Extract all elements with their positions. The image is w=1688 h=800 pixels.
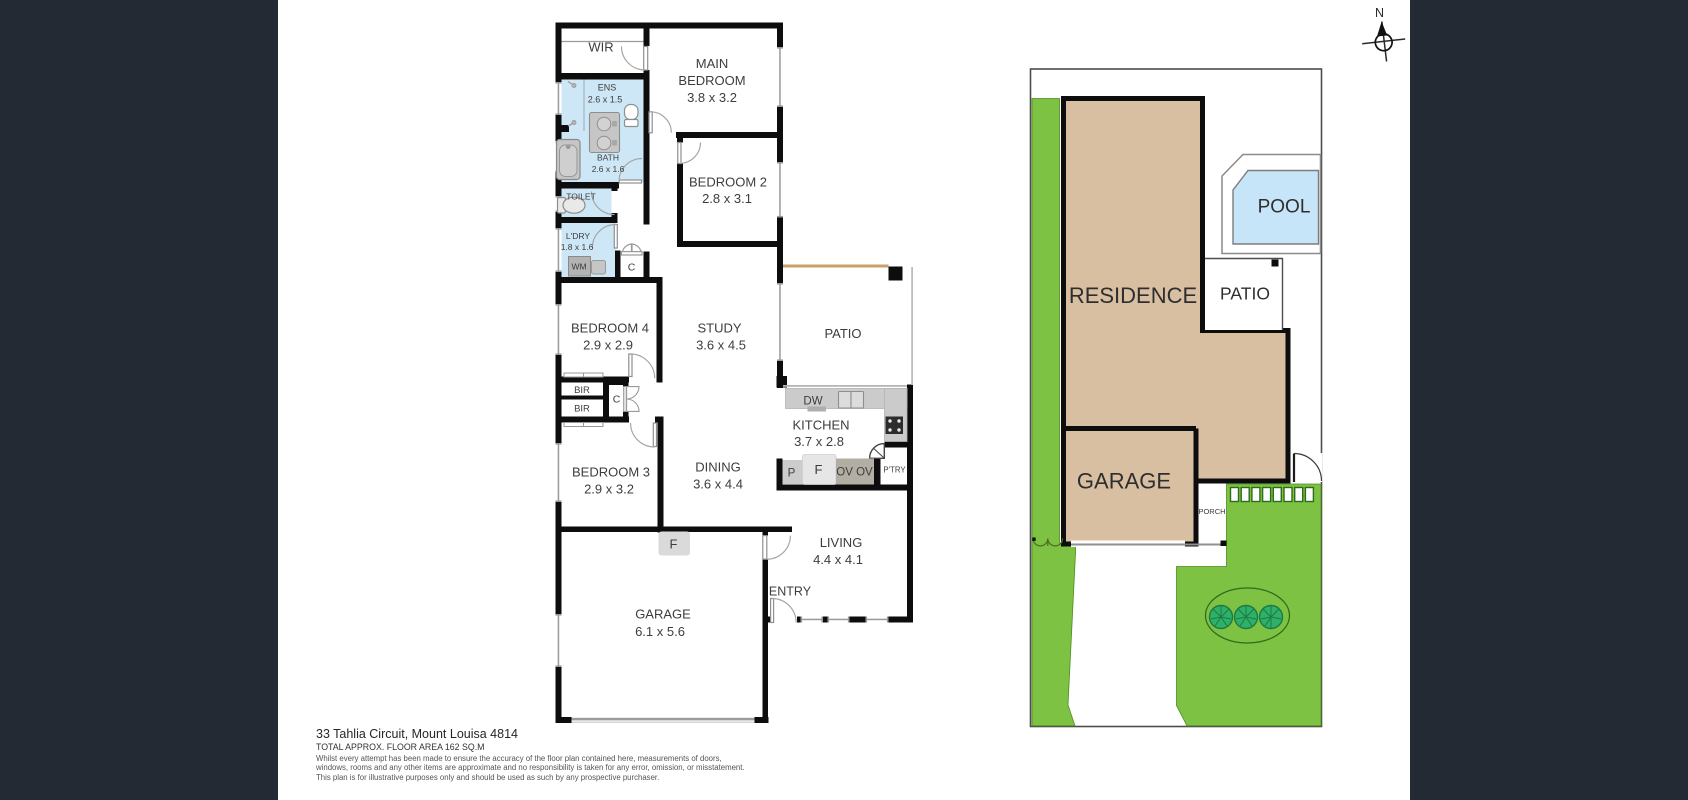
svg-text:N: N (1375, 6, 1384, 20)
svg-text:1.8 x 1.6: 1.8 x 1.6 (561, 242, 594, 252)
svg-text:BEDROOM 3: BEDROOM 3 (572, 465, 650, 480)
svg-text:GARAGE: GARAGE (1077, 469, 1171, 494)
svg-text:KITCHEN: KITCHEN (792, 418, 849, 433)
svg-text:BIR: BIR (574, 404, 590, 415)
svg-text:DINING: DINING (695, 460, 741, 475)
svg-text:F: F (815, 462, 823, 477)
svg-text:ENS: ENS (598, 83, 617, 93)
svg-text:WIR: WIR (588, 40, 613, 55)
svg-text:P'TRY: P'TRY (883, 466, 906, 475)
svg-text:BIR: BIR (574, 385, 590, 396)
svg-text:BATH: BATH (597, 153, 619, 163)
svg-text:BEDROOM 4: BEDROOM 4 (571, 321, 649, 336)
svg-text:3.6 x 4.4: 3.6 x 4.4 (693, 477, 743, 492)
svg-text:PATIO: PATIO (824, 326, 861, 341)
svg-text:4.4 x 4.1: 4.4 x 4.1 (813, 552, 863, 567)
svg-text:3.6 x 4.5: 3.6 x 4.5 (696, 338, 746, 353)
svg-text:BEDROOM: BEDROOM (678, 73, 745, 88)
svg-text:C: C (628, 262, 636, 274)
svg-text:P: P (788, 468, 796, 480)
svg-text:3.8 x 3.2: 3.8 x 3.2 (687, 90, 737, 105)
svg-text:6.1 x 5.6: 6.1 x 5.6 (635, 624, 685, 639)
svg-text:LIVING: LIVING (820, 535, 863, 550)
svg-text:2.9 x 2.9: 2.9 x 2.9 (583, 338, 633, 353)
svg-text:PORCH: PORCH (1198, 507, 1225, 516)
svg-text:2.6 x 1.5: 2.6 x 1.5 (588, 95, 623, 105)
svg-text:TOILET: TOILET (566, 192, 596, 202)
svg-text:3.7 x 2.8: 3.7 x 2.8 (794, 434, 844, 449)
svg-text:2.8 x 3.1: 2.8 x 3.1 (702, 191, 752, 206)
svg-text:POOL: POOL (1258, 197, 1311, 218)
svg-text:2.9 x 3.2: 2.9 x 3.2 (584, 482, 634, 497)
svg-text:WM: WM (571, 262, 586, 272)
svg-text:BEDROOM 2: BEDROOM 2 (689, 175, 767, 190)
svg-text:2.6 x 1.6: 2.6 x 1.6 (592, 164, 625, 174)
svg-text:L'DRY: L'DRY (566, 231, 590, 241)
svg-text:F: F (670, 537, 678, 552)
svg-text:MAIN: MAIN (696, 56, 729, 71)
svg-text:RESIDENCE: RESIDENCE (1069, 283, 1197, 308)
svg-text:ENTRY: ENTRY (769, 585, 812, 599)
svg-text:OV OV: OV OV (836, 467, 873, 479)
svg-text:DW: DW (803, 396, 822, 408)
svg-text:GARAGE: GARAGE (635, 607, 691, 622)
svg-text:PATIO: PATIO (1220, 284, 1270, 304)
svg-text:C: C (613, 394, 621, 406)
svg-text:STUDY: STUDY (697, 321, 741, 336)
